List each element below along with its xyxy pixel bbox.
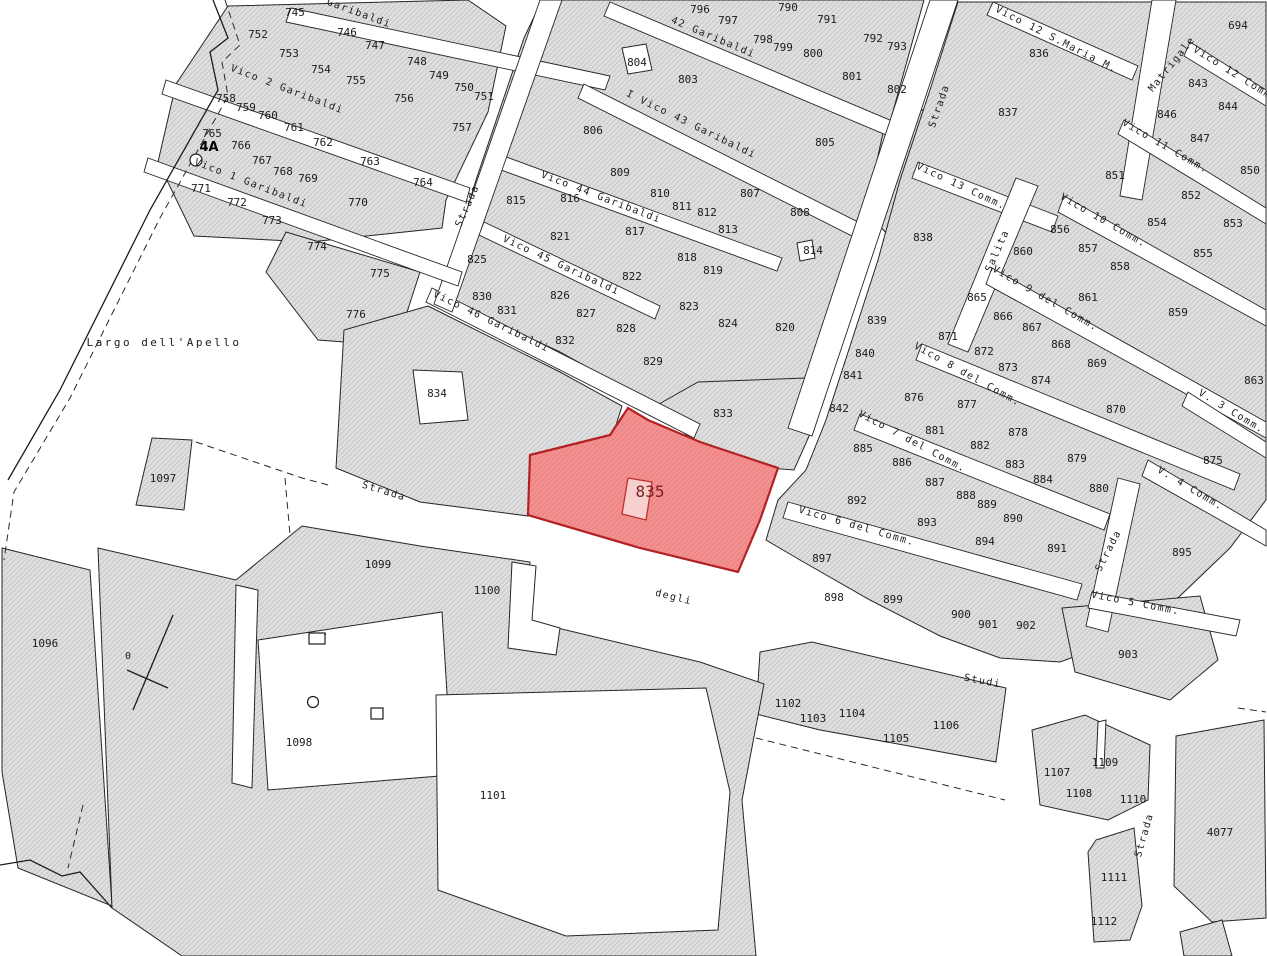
- parcel-label-1106: 1106: [933, 719, 960, 732]
- parcel-label-846: 846: [1157, 108, 1177, 121]
- parcel-label-815: 815: [506, 194, 526, 207]
- parcel-label-900: 900: [951, 608, 971, 621]
- parcel-label-850: 850: [1240, 164, 1260, 177]
- parcel-label-1101: 1101: [480, 789, 507, 802]
- parcel-label-755: 755: [346, 74, 366, 87]
- parcel-label-804: 804: [627, 56, 647, 69]
- parcel-label-791: 791: [817, 13, 837, 26]
- parcel-label-1108: 1108: [1066, 787, 1093, 800]
- parcel-label-879: 879: [1067, 452, 1087, 465]
- parcel-label-876: 876: [904, 391, 924, 404]
- parcel-label-858: 858: [1110, 260, 1130, 273]
- parcel-label-753: 753: [279, 47, 299, 60]
- parcel-label-865: 865: [967, 291, 987, 304]
- parcel-label-874: 874: [1031, 374, 1051, 387]
- parcel-label-763: 763: [360, 155, 380, 168]
- parcel-label-757: 757: [452, 121, 472, 134]
- parcel-label-855: 855: [1193, 247, 1213, 260]
- parcel-label-809: 809: [610, 166, 630, 179]
- courtyard: [258, 612, 452, 790]
- parcel-label-839: 839: [867, 314, 887, 327]
- parcel-label-752: 752: [248, 28, 268, 41]
- parcel-label-762: 762: [313, 136, 333, 149]
- parcel-label-857: 857: [1078, 242, 1098, 255]
- parcel-label-852: 852: [1181, 189, 1201, 202]
- parcel-label-812: 812: [697, 206, 717, 219]
- parcel-label-847: 847: [1190, 132, 1210, 145]
- parcel-label-1099: 1099: [365, 558, 392, 571]
- parcel-label-806: 806: [583, 124, 603, 137]
- parcel-label-798: 798: [753, 33, 773, 46]
- parcel-label-760: 760: [258, 109, 278, 122]
- parcel-label-859: 859: [1168, 306, 1188, 319]
- parcel-label-881: 881: [925, 424, 945, 437]
- parcel-label-880: 880: [1089, 482, 1109, 495]
- parcel-label-844: 844: [1218, 100, 1238, 113]
- parcel-label-828: 828: [616, 322, 636, 335]
- highlighted-parcel-label: 835: [636, 482, 665, 501]
- street-label: Strada: [1133, 812, 1156, 858]
- parcel-label-811: 811: [672, 200, 692, 213]
- parcel-label-1112: 1112: [1091, 915, 1118, 928]
- parcel-label-886: 886: [892, 456, 912, 469]
- parcel-label-894: 894: [975, 535, 995, 548]
- square-symbol: [371, 708, 383, 719]
- parcel-label-837: 837: [998, 106, 1018, 119]
- parcel-label-866: 866: [993, 310, 1013, 323]
- place-label: 4A: [199, 140, 218, 155]
- circle-symbol: [308, 697, 319, 708]
- parcel-label-895: 895: [1172, 546, 1192, 559]
- parcel-label-800: 800: [803, 47, 823, 60]
- parcel-label-773: 773: [262, 214, 282, 227]
- parcel-label-827: 827: [576, 307, 596, 320]
- parcel-label-1107: 1107: [1044, 766, 1071, 779]
- parcel-label-840: 840: [855, 347, 875, 360]
- parcel-label-825: 825: [467, 253, 487, 266]
- parcel-label-766: 766: [231, 139, 251, 152]
- parcel-label-765: 765: [202, 127, 222, 140]
- place-label: Largo dell'Apello: [86, 336, 241, 349]
- parcel-label-901: 901: [978, 618, 998, 631]
- parcel-label-1109: 1109: [1092, 756, 1119, 769]
- parcel-label-797: 797: [718, 14, 738, 27]
- cadastral-map-stage: 7457467477487497507517527537547557567577…: [0, 0, 1267, 956]
- parcel-label-853: 853: [1223, 217, 1243, 230]
- parcel-label-1103: 1103: [800, 712, 827, 725]
- parcel-label-747: 747: [365, 39, 385, 52]
- parcel-label-841: 841: [843, 369, 863, 382]
- parcel-label-793: 793: [887, 40, 907, 53]
- parcel-label-817: 817: [625, 225, 645, 238]
- parcel-label-819: 819: [703, 264, 723, 277]
- parcel-label-771: 771: [191, 182, 211, 195]
- parcel-label-899: 899: [883, 593, 903, 606]
- parcel-label-885: 885: [853, 442, 873, 455]
- parcel-label-751: 751: [474, 90, 494, 103]
- place-label: 0: [125, 651, 131, 662]
- parcel-label-872: 872: [974, 345, 994, 358]
- parcel-label-768: 768: [273, 165, 293, 178]
- parcel-label-902: 902: [1016, 619, 1036, 632]
- parcel-label-820: 820: [775, 321, 795, 334]
- city-block: [1180, 920, 1232, 956]
- parcel-label-873: 873: [998, 361, 1018, 374]
- parcel-label-843: 843: [1188, 77, 1208, 90]
- parcel-label-769: 769: [298, 172, 318, 185]
- courtyard: [436, 688, 730, 936]
- parcel-label-860: 860: [1013, 245, 1033, 258]
- parcel-label-1098: 1098: [286, 736, 313, 749]
- parcel-label-814: 814: [803, 244, 823, 257]
- parcel-label-871: 871: [938, 330, 958, 343]
- parcel-label-882: 882: [970, 439, 990, 452]
- courtyard: [508, 562, 560, 655]
- parcel-label-842: 842: [829, 402, 849, 415]
- parcel-label-824: 824: [718, 317, 738, 330]
- parcel-label-1111: 1111: [1101, 871, 1128, 884]
- parcel-label-748: 748: [407, 55, 427, 68]
- city-block: [1174, 720, 1266, 922]
- parcel-label-889: 889: [977, 498, 997, 511]
- parcel-label-861: 861: [1078, 291, 1098, 304]
- parcel-label-856: 856: [1050, 223, 1070, 236]
- parcel-label-1097: 1097: [150, 472, 177, 485]
- parcel-label-802: 802: [887, 83, 907, 96]
- cadastral-map: 7457467477487497507517527537547557567577…: [0, 0, 1267, 956]
- parcel-label-878: 878: [1008, 426, 1028, 439]
- parcel-label-832: 832: [555, 334, 575, 347]
- parcel-label-851: 851: [1105, 169, 1125, 182]
- parcel-label-792: 792: [863, 32, 883, 45]
- parcel-label-838: 838: [913, 231, 933, 244]
- parcel-label-854: 854: [1147, 216, 1167, 229]
- parcel-label-888: 888: [956, 489, 976, 502]
- dashed-boundary-line: [1238, 708, 1266, 712]
- parcel-label-893: 893: [917, 516, 937, 529]
- parcel-label-1100: 1100: [474, 584, 501, 597]
- parcel-label-756: 756: [394, 92, 414, 105]
- parcel-label-834: 834: [427, 387, 447, 400]
- parcel-label-887: 887: [925, 476, 945, 489]
- parcel-label-805: 805: [815, 136, 835, 149]
- parcel-label-869: 869: [1087, 357, 1107, 370]
- parcel-label-790: 790: [778, 1, 798, 14]
- parcel-label-808: 808: [790, 206, 810, 219]
- parcel-label-870: 870: [1106, 403, 1126, 416]
- parcel-label-1110: 1110: [1120, 793, 1147, 806]
- parcel-label-813: 813: [718, 223, 738, 236]
- parcel-label-818: 818: [677, 251, 697, 264]
- parcel-label-892: 892: [847, 494, 867, 507]
- parcel-label-761: 761: [284, 121, 304, 134]
- parcel-label-898: 898: [824, 591, 844, 604]
- parcel-label-810: 810: [650, 187, 670, 200]
- parcel-label-767: 767: [252, 154, 272, 167]
- parcel-label-890: 890: [1003, 512, 1023, 525]
- parcel-label-1102: 1102: [775, 697, 802, 710]
- parcel-label-745: 745: [285, 6, 305, 19]
- parcel-label-883: 883: [1005, 458, 1025, 471]
- parcel-label-836: 836: [1029, 47, 1049, 60]
- square-symbol: [309, 633, 325, 644]
- parcel-label-1096: 1096: [32, 637, 59, 650]
- parcel-label-875: 875: [1203, 454, 1223, 467]
- parcel-label-1104: 1104: [839, 707, 866, 720]
- parcel-label-830: 830: [472, 290, 492, 303]
- parcel-label-803: 803: [678, 73, 698, 86]
- parcel-label-903: 903: [1118, 648, 1138, 661]
- parcel-label-4077: 4077: [1207, 826, 1234, 839]
- parcel-label-1105: 1105: [883, 732, 910, 745]
- dashed-boundary-line: [196, 442, 332, 486]
- parcel-label-867: 867: [1022, 321, 1042, 334]
- parcel-label-799: 799: [773, 41, 793, 54]
- dashed-boundary-line: [285, 478, 290, 535]
- parcel-label-822: 822: [622, 270, 642, 283]
- street-label: degli: [654, 588, 693, 608]
- parcel-label-694: 694: [1228, 19, 1248, 32]
- city-block: [2, 548, 112, 906]
- parcel-label-749: 749: [429, 69, 449, 82]
- parcel-label-829: 829: [643, 355, 663, 368]
- parcel-label-891: 891: [1047, 542, 1067, 555]
- parcel-label-897: 897: [812, 552, 832, 565]
- parcel-label-833: 833: [713, 407, 733, 420]
- parcel-label-774: 774: [307, 240, 327, 253]
- parcel-label-831: 831: [497, 304, 517, 317]
- parcel-label-759: 759: [236, 101, 256, 114]
- parcel-label-823: 823: [679, 300, 699, 313]
- parcel-label-821: 821: [550, 230, 570, 243]
- parcel-label-868: 868: [1051, 338, 1071, 351]
- parcel-label-776: 776: [346, 308, 366, 321]
- parcel-label-877: 877: [957, 398, 977, 411]
- parcel-label-770: 770: [348, 196, 368, 209]
- parcel-label-801: 801: [842, 70, 862, 83]
- parcel-label-750: 750: [454, 81, 474, 94]
- parcel-label-863: 863: [1244, 374, 1264, 387]
- parcel-label-754: 754: [311, 63, 331, 76]
- parcel-label-884: 884: [1033, 473, 1053, 486]
- parcel-label-764: 764: [413, 176, 433, 189]
- parcel-label-796: 796: [690, 3, 710, 16]
- parcel-label-758: 758: [216, 92, 236, 105]
- parcel-label-807: 807: [740, 187, 760, 200]
- parcel-label-772: 772: [227, 196, 247, 209]
- parcel-label-746: 746: [337, 26, 357, 39]
- parcel-label-775: 775: [370, 267, 390, 280]
- parcel-label-826: 826: [550, 289, 570, 302]
